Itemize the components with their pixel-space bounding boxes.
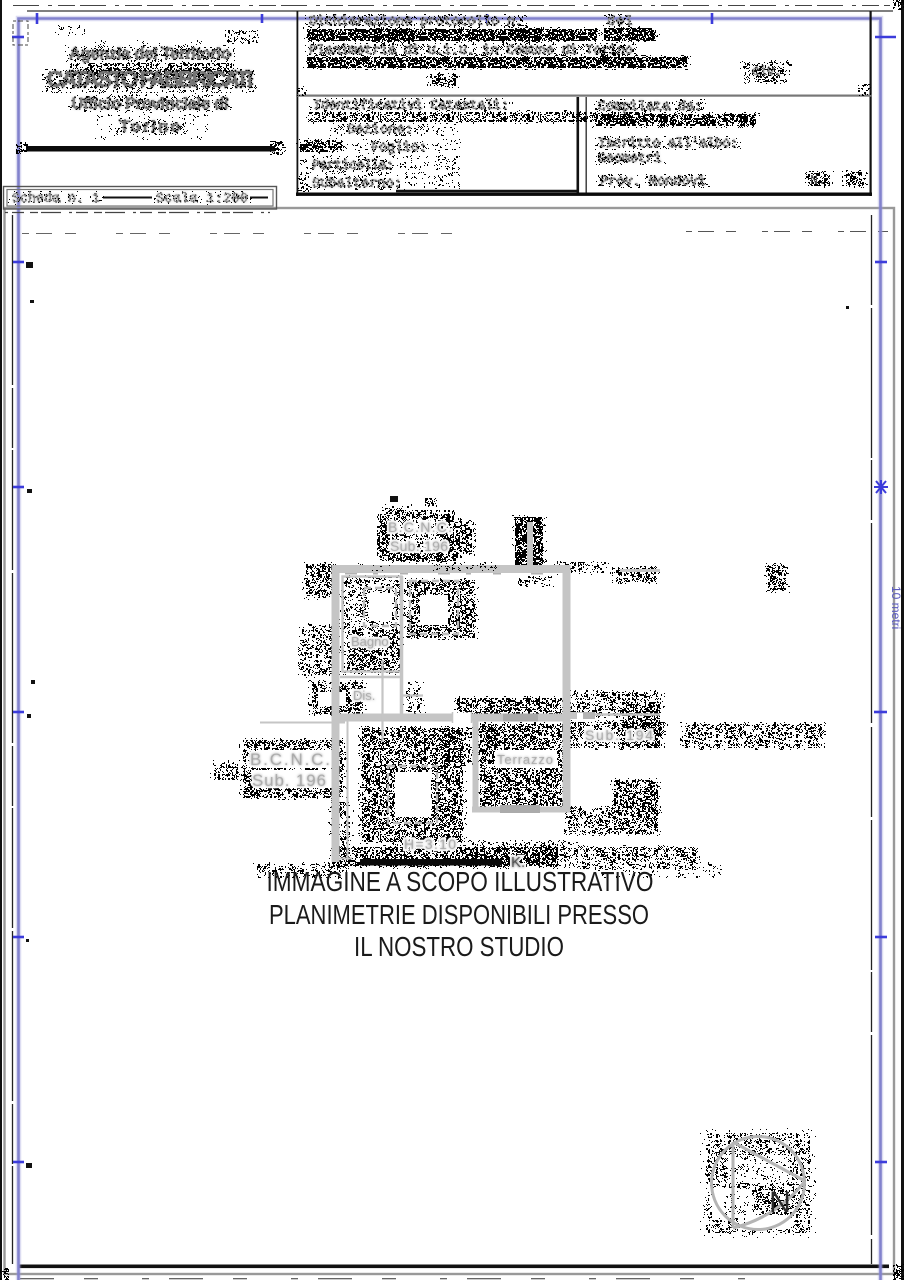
svg-text:Bagno: Bagno [351, 634, 389, 649]
svg-text:H=3.10: H=3.10 [404, 836, 456, 852]
svg-text:IMMAGINE A SCOPO ILLUSTRATIVO: IMMAGINE A SCOPO ILLUSTRATIVO [267, 866, 654, 897]
svg-text:Sub. 196: Sub. 196 [390, 538, 448, 554]
svg-text:Sub. 196: Sub. 196 [252, 771, 326, 790]
svg-text:PLANIMETRIE DISPONIBILI PRESSO: PLANIMETRIE DISPONIBILI PRESSO [269, 899, 649, 930]
svg-text:N.: N. [810, 174, 826, 189]
svg-text:B.C.N.C.: B.C.N.C. [388, 519, 452, 535]
svg-text:10 metri: 10 metri [889, 586, 903, 629]
svg-text:N: N [769, 1186, 791, 1219]
svg-text:Dis.: Dis. [353, 688, 375, 703]
svg-text:Terrazzo: Terrazzo [497, 752, 553, 767]
svg-text:IL NOSTRO STUDIO: IL NOSTRO STUDIO [354, 931, 564, 962]
